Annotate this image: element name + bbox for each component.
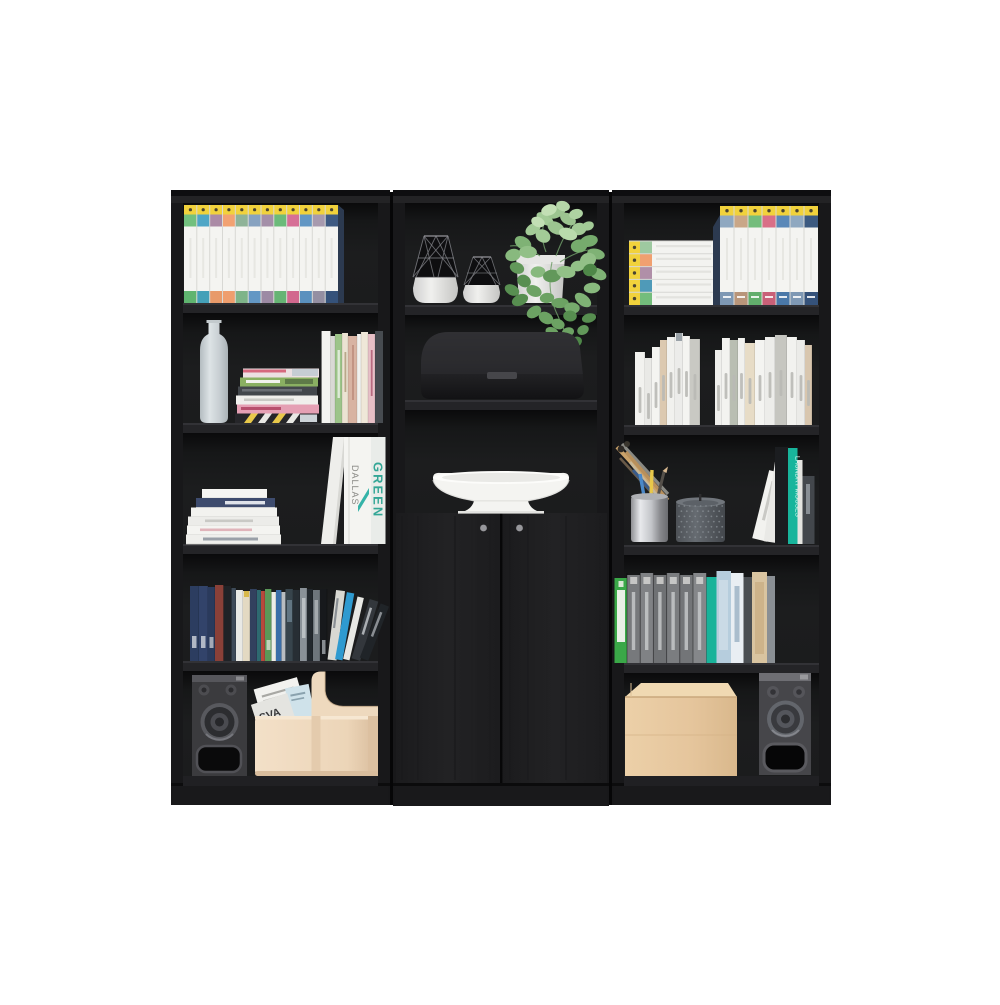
svg-text:DALLAS: DALLAS [350,465,360,506]
svg-text:GREEN: GREEN [371,462,386,518]
